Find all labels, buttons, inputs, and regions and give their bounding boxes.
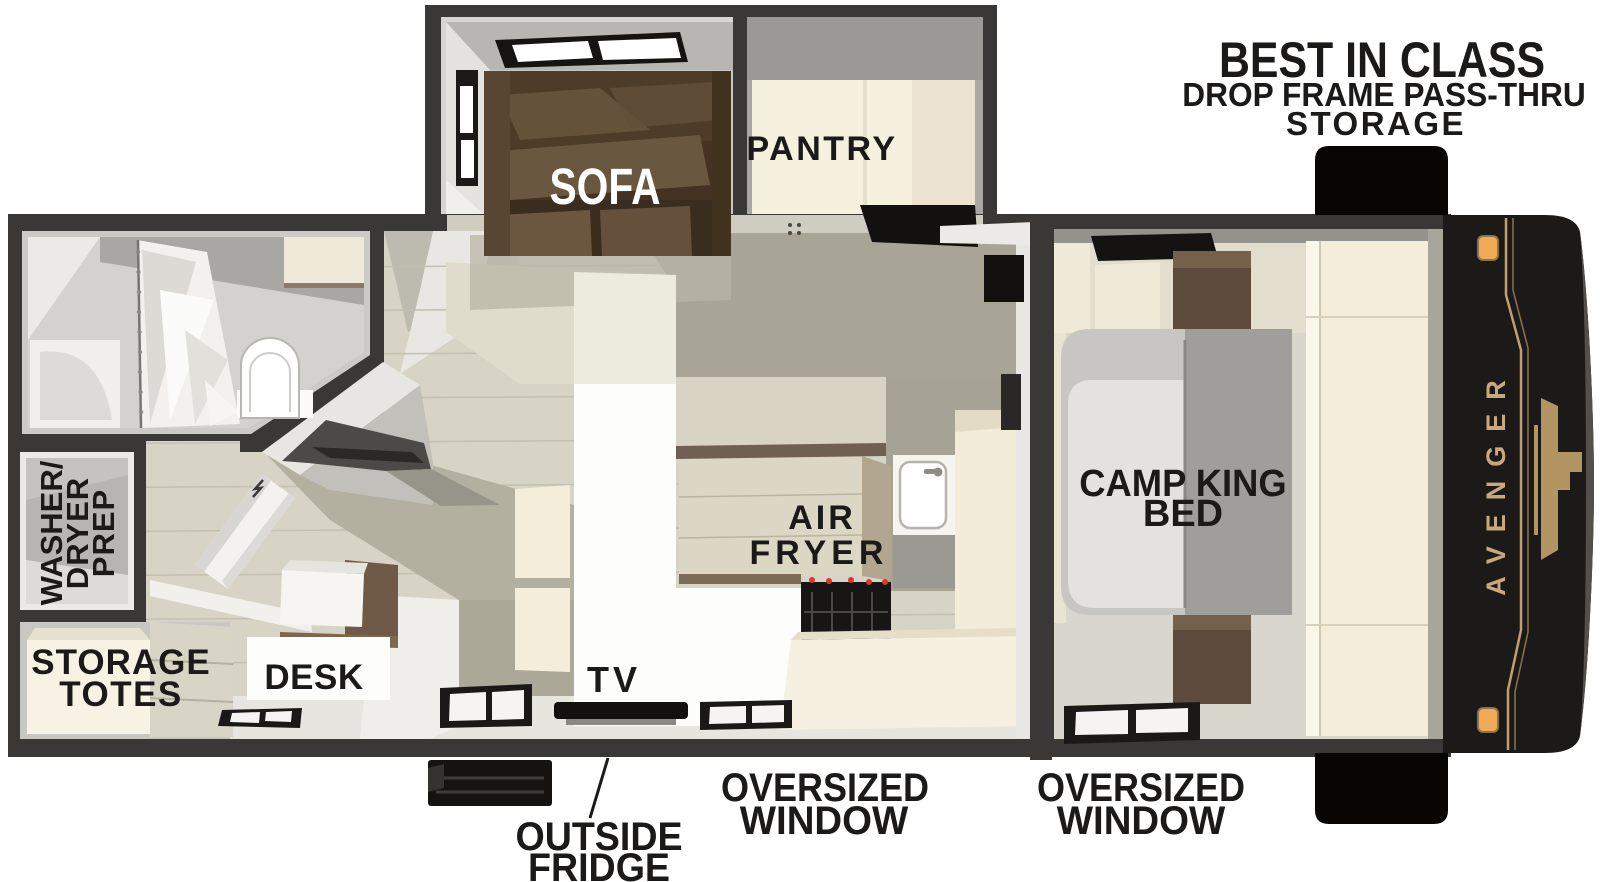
svg-text:WINDOW: WINDOW — [740, 799, 908, 843]
svg-text:BED: BED — [1143, 493, 1223, 535]
svg-text:FRIDGE: FRIDGE — [528, 846, 670, 882]
svg-text:TOTES: TOTES — [59, 675, 183, 714]
svg-text:STORAGE: STORAGE — [1286, 105, 1466, 142]
svg-text:WINDOW: WINDOW — [1057, 799, 1225, 843]
svg-text:PREP: PREP — [86, 489, 121, 577]
svg-text:PANTRY: PANTRY — [747, 130, 898, 168]
svg-text:DESK: DESK — [264, 658, 363, 697]
svg-text:SOFA: SOFA — [549, 158, 660, 215]
svg-text:FRYER: FRYER — [750, 534, 889, 572]
svg-text:AIR: AIR — [788, 499, 856, 537]
svg-text:AVENGER: AVENGER — [1481, 366, 1511, 596]
svg-text:TV: TV — [587, 659, 641, 700]
